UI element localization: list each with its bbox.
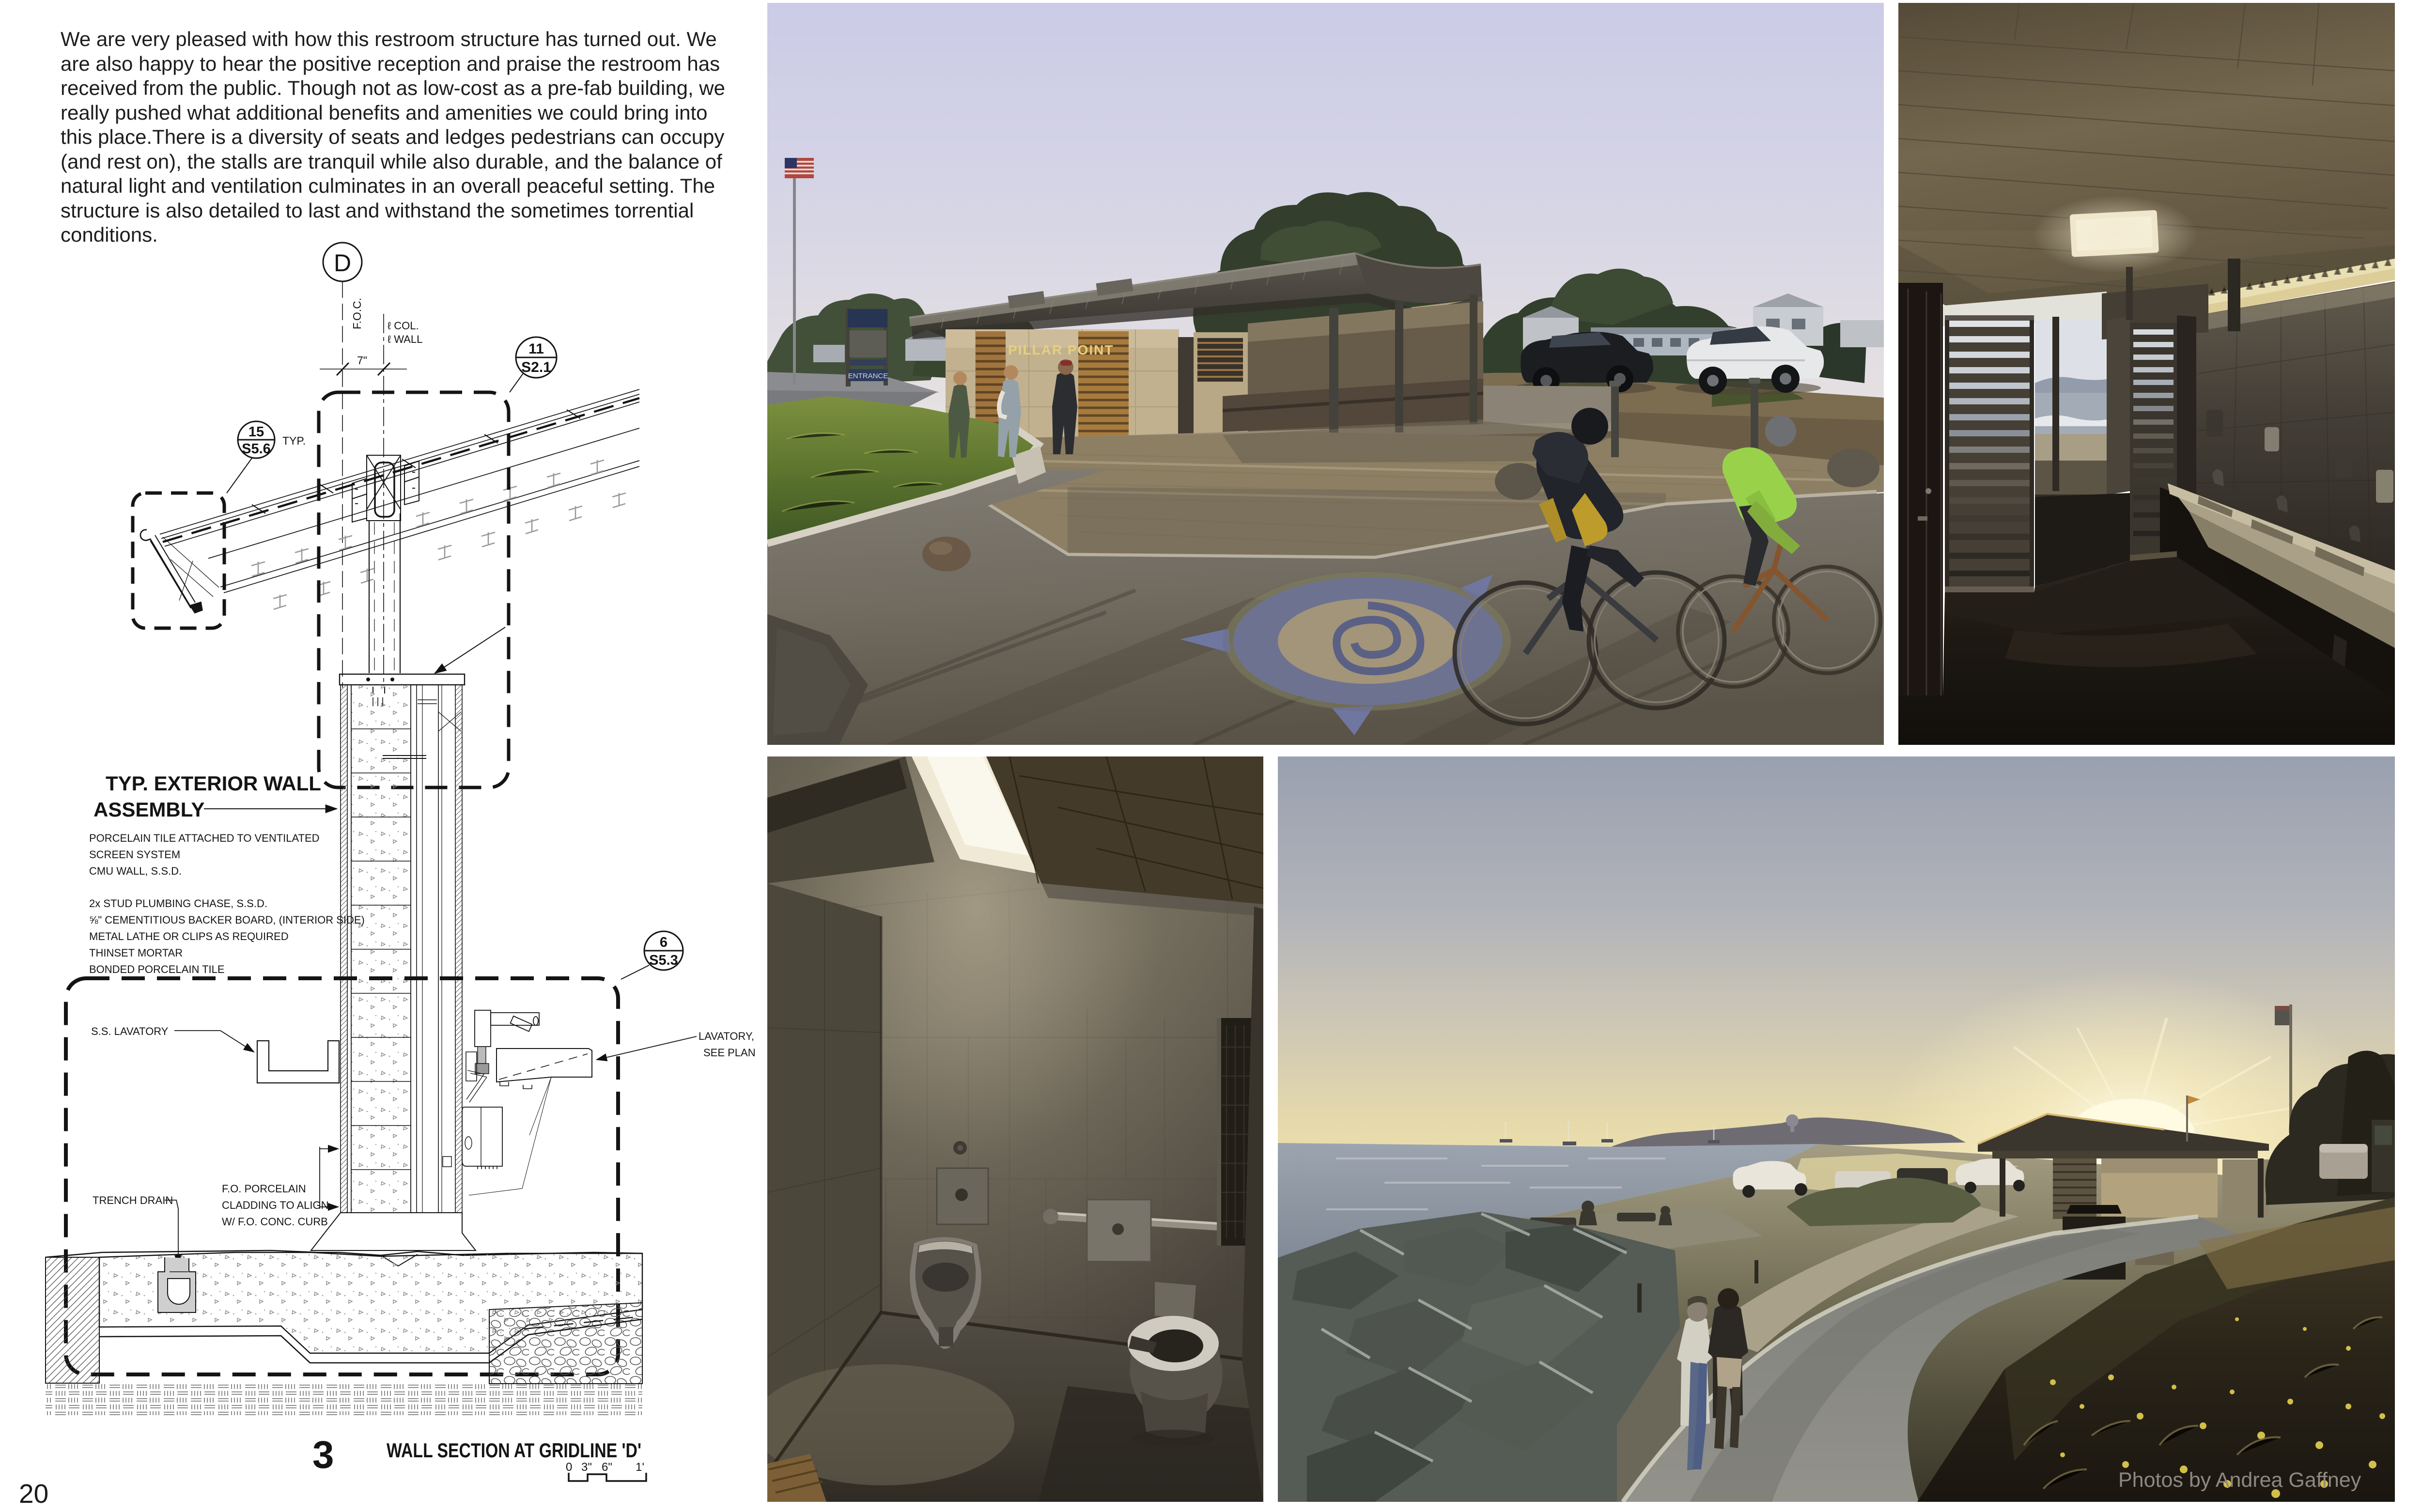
svg-text:W/ F.O. CONC. CURB: W/ F.O. CONC. CURB (222, 1216, 328, 1228)
svg-text:D: D (334, 249, 351, 277)
svg-text:PORCELAIN TILE ATTACHED TO VEN: PORCELAIN TILE ATTACHED TO VENTILATED (89, 832, 320, 844)
svg-text:PILLAR POINT: PILLAR POINT (1008, 342, 1114, 357)
svg-text:LAVATORY,: LAVATORY, (699, 1030, 754, 1042)
svg-text:Photos by Andrea Gaffney: Photos by Andrea Gaffney (2118, 1468, 2361, 1492)
svg-text:3": 3" (581, 1461, 592, 1474)
svg-text:CLADDING TO ALIGN: CLADDING TO ALIGN (222, 1199, 328, 1211)
svg-text:ℓ COL.: ℓ COL. (388, 320, 419, 332)
svg-text:6: 6 (660, 935, 668, 950)
svg-text:F.O. PORCELAIN: F.O. PORCELAIN (222, 1183, 306, 1195)
svg-text:SEE PLAN: SEE PLAN (703, 1047, 756, 1059)
svg-text:0: 0 (566, 1461, 572, 1474)
svg-text:METAL LATHE OR CLIPS AS REQUIR: METAL LATHE OR CLIPS AS REQUIRED (89, 930, 289, 942)
svg-text:S2.1: S2.1 (521, 359, 551, 375)
svg-text:S5.6: S5.6 (242, 441, 271, 457)
svg-text:SCREEN SYSTEM: SCREEN SYSTEM (89, 849, 180, 861)
svg-text:6": 6" (602, 1461, 612, 1474)
svg-text:F.O.C.: F.O.C. (351, 298, 363, 329)
svg-text:S.S. LAVATORY: S.S. LAVATORY (91, 1025, 169, 1037)
svg-text:TYP.: TYP. (282, 434, 306, 447)
svg-text:15: 15 (248, 424, 264, 440)
svg-text:ASSEMBLY: ASSEMBLY (93, 798, 205, 821)
svg-text:11: 11 (528, 341, 544, 357)
svg-text:TRENCH DRAIN: TRENCH DRAIN (93, 1194, 173, 1206)
svg-text:BONDED PORCELAIN TILE: BONDED PORCELAIN TILE (89, 963, 225, 975)
svg-text:⅝" CEMENTITIOUS BACKER BOARD,: ⅝" CEMENTITIOUS BACKER BOARD, (INTERIOR … (89, 914, 365, 926)
svg-text:TYP. EXTERIOR WALL: TYP. EXTERIOR WALL (106, 772, 321, 795)
svg-text:7": 7" (357, 354, 367, 367)
svg-text:2x STUD PLUMBING CHASE, S.S.D: 2x STUD PLUMBING CHASE, S.S.D. (89, 897, 267, 910)
svg-text:ENTRANCE: ENTRANCE (848, 372, 888, 380)
svg-text:S5.3: S5.3 (649, 953, 678, 968)
svg-text:THINSET MORTAR: THINSET MORTAR (89, 947, 183, 959)
svg-text:1': 1' (636, 1461, 644, 1474)
svg-text:3: 3 (312, 1433, 334, 1476)
svg-text:ℓ WALL: ℓ WALL (388, 333, 422, 345)
svg-text:CMU WALL, S.S.D.: CMU WALL, S.S.D. (89, 865, 182, 877)
svg-text:WALL SECTION AT GRIDLINE 'D': WALL SECTION AT GRIDLINE 'D' (387, 1439, 641, 1462)
